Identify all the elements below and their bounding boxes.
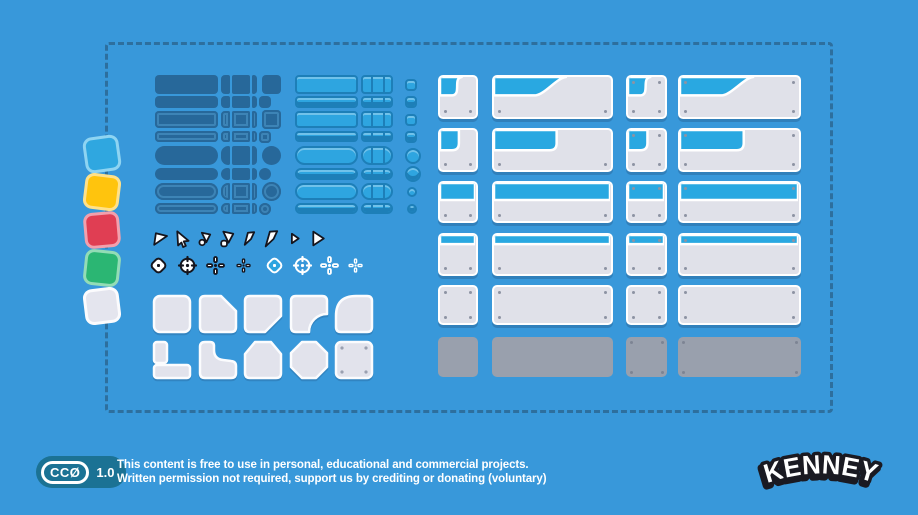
panel-header [680, 235, 798, 273]
screw-icon [658, 214, 661, 217]
light-button-segmented [361, 75, 393, 94]
keycap-arch-top [243, 340, 283, 385]
segment-divider [383, 205, 385, 212]
diamond-light-crosshair-icon [263, 254, 286, 277]
screw-icon [658, 291, 661, 294]
panel-plain-r5-c1 [438, 285, 478, 325]
light-button-circle [407, 187, 417, 197]
plus-light-crosshair-icon [318, 254, 341, 277]
screw-icon [498, 214, 501, 217]
screw-icon [604, 267, 607, 270]
dark-button-mid [232, 96, 250, 108]
panel-disabled-r6-c2 [492, 337, 613, 377]
screw-icon [444, 291, 447, 294]
screw-icon [469, 214, 472, 217]
screw-icon [444, 214, 447, 217]
segment-divider [383, 113, 385, 126]
screw-icon [498, 291, 501, 294]
diamond-dark-crosshair-icon [147, 254, 170, 277]
license-line-2: Written permission not required, support… [117, 473, 546, 487]
light-button-wide [295, 168, 358, 180]
screw-icon [684, 110, 687, 113]
panel-header-tab-r2-c1 [438, 128, 478, 172]
panel-header [494, 130, 610, 169]
screw-icon [658, 81, 661, 84]
dark-button-mid [232, 131, 250, 142]
segment-divider [371, 113, 373, 126]
screw-icon [658, 267, 661, 270]
panel-disabled-r6-c1 [438, 337, 478, 377]
swatch-red [82, 210, 121, 249]
swatch-yellow [82, 172, 122, 212]
screw-icon [658, 163, 661, 166]
screw-icon [795, 371, 798, 374]
screw-icon [469, 110, 472, 113]
logo-text: KENNEY [760, 449, 881, 488]
panel-header-half-r3-c3 [626, 181, 667, 223]
screw-icon [658, 239, 661, 242]
screw-icon [658, 316, 661, 319]
screw-icon [684, 187, 687, 190]
keycap-cut-bottom-right [243, 294, 283, 339]
dark-button-cap-right [252, 146, 257, 165]
dark-button-circle [262, 146, 281, 165]
screw-icon [444, 316, 447, 319]
screw-icon [684, 316, 687, 319]
screw-icon [661, 341, 664, 344]
light-button-square [405, 79, 417, 91]
dark-button-square [259, 96, 271, 108]
dark-button-cap-right [252, 96, 257, 108]
screw-icon [444, 267, 447, 270]
screw-icon [604, 110, 607, 113]
panel-header-tab-r2-c2 [492, 128, 613, 172]
keycap-cut-top-right [198, 294, 238, 339]
screw-icon [682, 341, 685, 344]
cc0-label: CCØ [41, 461, 89, 484]
dark-button-mid [232, 168, 250, 180]
screw-icon [632, 134, 635, 137]
dark-button-square [262, 75, 281, 94]
dark-button-mid [232, 146, 250, 165]
panel-header-tab-r2-c4 [678, 128, 801, 172]
screw-icon [658, 110, 661, 113]
keycap-l-curve [198, 340, 238, 385]
screw-icon [444, 110, 447, 113]
segment-divider [383, 98, 385, 106]
panel-header-diagonal-r1-c3 [626, 75, 667, 119]
segment-divider [383, 148, 385, 163]
segment-divider [383, 185, 385, 198]
dark-button-cap-right [252, 131, 257, 142]
screw-icon [469, 267, 472, 270]
keycap-l-shape [152, 340, 192, 385]
dark-button-cap-left [221, 168, 230, 180]
dark-button-square [262, 110, 281, 129]
screw-icon [684, 163, 687, 166]
light-button-circle [407, 204, 417, 214]
dark-button-cap-left [221, 75, 230, 94]
light-button-segmented [361, 168, 393, 180]
dark-button-circle [262, 182, 281, 201]
dark-button-wide [155, 96, 218, 108]
asset-pack-preview-sheet: CCØ 1.0 This content is free to use in p… [0, 0, 918, 515]
triangle-pointer-large-icon [307, 228, 328, 249]
swatch-white [82, 286, 122, 326]
keycap-notch-bottom-right [289, 294, 329, 339]
screw-icon [658, 134, 661, 137]
keycap-square [152, 294, 192, 339]
screw-icon [684, 291, 687, 294]
dark-button-cap-left [221, 203, 230, 214]
screw-icon [632, 239, 635, 242]
panel-header-thin-r4-c2 [492, 233, 613, 276]
screw-icon [632, 214, 635, 217]
screw-icon [792, 134, 795, 137]
flag-pointer-icon [150, 228, 171, 249]
dark-button-circle [259, 203, 271, 215]
plus-dark-crosshair-icon [204, 254, 227, 277]
screw-icon [792, 267, 795, 270]
segment-divider [371, 133, 373, 140]
screw-icon [604, 316, 607, 319]
dark-button-cap-left [221, 96, 230, 108]
screw-icon [684, 214, 687, 217]
screw-icon [684, 267, 687, 270]
segment-divider [371, 98, 373, 106]
drag-pointer-small-icon [195, 228, 216, 249]
light-button-segmented [361, 183, 393, 200]
light-button-wide [295, 183, 358, 200]
screw-icon [630, 341, 633, 344]
screw-icon [792, 81, 795, 84]
screw-icon [632, 291, 635, 294]
screw-icon [792, 239, 795, 242]
panel-header [494, 235, 610, 273]
keycap-screw-plate [334, 340, 374, 385]
plus-small-dark-crosshair-icon [232, 254, 255, 277]
plus-small-light-crosshair-icon [344, 254, 367, 277]
light-button-wide [295, 96, 358, 108]
cc0-badge: CCØ 1.0 [36, 456, 126, 488]
segment-divider [371, 77, 373, 92]
screw-icon [498, 110, 501, 113]
light-button-wide [295, 203, 358, 214]
swatch-blue [82, 134, 123, 175]
panel-disabled-r6-c3 [626, 337, 667, 377]
dark-button-wide [155, 131, 218, 142]
light-button-circle [405, 166, 421, 182]
screw-icon [792, 163, 795, 166]
dark-button-cap-right [252, 111, 257, 128]
panel-header [494, 77, 610, 116]
dark-button-wide [155, 146, 218, 165]
dark-button-wide [155, 203, 218, 214]
segment-divider [371, 205, 373, 212]
panel-plain-r5-c2 [492, 285, 613, 325]
panel-header [680, 183, 798, 220]
light-button-segmented [361, 131, 393, 142]
light-button-segmented [361, 96, 393, 108]
keycap-octagon [289, 340, 329, 385]
shard-pointer-small-icon [240, 228, 261, 249]
dark-button-cap-left [221, 131, 230, 142]
screw-icon [632, 267, 635, 270]
panel-header-diagonal-r1-c2 [492, 75, 613, 119]
target-light-crosshair-icon [291, 254, 314, 277]
segment-divider [371, 170, 373, 178]
dark-button-wide [155, 168, 218, 180]
screw-icon [604, 214, 607, 217]
panel-plain-r5-c4 [678, 285, 801, 325]
light-button-wide [295, 131, 358, 142]
panel-plain-r5-c3 [626, 285, 667, 325]
panel-header-half-r3-c1 [438, 181, 478, 223]
dark-button-square [259, 131, 271, 143]
screw-icon [444, 163, 447, 166]
dark-button-mid [232, 111, 250, 128]
screw-icon [792, 214, 795, 217]
screw-icon [604, 291, 607, 294]
screw-icon [632, 163, 635, 166]
dark-button-circle [259, 168, 271, 180]
shard-pointer-large-icon [262, 228, 283, 249]
panel-header-half-r3-c2 [492, 181, 613, 223]
cc0-version: 1.0 [96, 465, 114, 480]
panel-header-tab-r2-c3 [626, 128, 667, 172]
dark-button-mid [232, 183, 250, 200]
segment-divider [371, 148, 373, 163]
dark-button-cap-right [252, 75, 257, 94]
screw-icon [498, 163, 501, 166]
panel-header [680, 130, 798, 169]
dark-button-wide [155, 75, 218, 94]
screw-icon [658, 187, 661, 190]
screw-icon [498, 316, 501, 319]
swatch-green [82, 248, 122, 288]
dark-button-cap-left [221, 183, 230, 200]
triangle-pointer-small-icon [284, 228, 305, 249]
light-button-square [405, 96, 417, 108]
light-button-square [405, 114, 417, 126]
segment-divider [371, 185, 373, 198]
panel-header-thin-r4-c3 [626, 233, 667, 276]
light-button-square [405, 131, 417, 143]
segment-divider [383, 77, 385, 92]
light-button-wide [295, 75, 358, 94]
light-button-wide [295, 111, 358, 128]
segment-divider [383, 170, 385, 178]
license-text: This content is free to use in personal,… [117, 459, 546, 486]
panel-header [680, 77, 798, 116]
panel-header-diagonal-r1-c1 [438, 75, 478, 119]
light-button-segmented [361, 111, 393, 128]
screw-icon [469, 316, 472, 319]
panel-header-half-r3-c4 [678, 181, 801, 223]
dark-button-cap-left [221, 111, 230, 128]
screw-icon [795, 341, 798, 344]
dark-button-mid [232, 75, 250, 94]
screw-icon [684, 134, 687, 137]
panel-header-thin-r4-c1 [438, 233, 478, 276]
screw-icon [630, 371, 633, 374]
dark-button-wide [155, 111, 218, 128]
dark-button-cap-right [252, 183, 257, 200]
segment-divider [383, 133, 385, 140]
screw-icon [632, 187, 635, 190]
keycap-round-top-left [334, 294, 374, 339]
kenney-logo: KENNEY KENNEY [762, 436, 886, 500]
screw-icon [604, 163, 607, 166]
screw-icon [684, 81, 687, 84]
screw-icon [632, 81, 635, 84]
screw-icon [469, 163, 472, 166]
light-button-segmented [361, 146, 393, 165]
arrow-cursor-icon [172, 228, 193, 249]
panel-disabled-r6-c4 [678, 337, 801, 377]
dark-button-cap-left [221, 146, 230, 165]
screw-icon [792, 316, 795, 319]
screw-icon [792, 187, 795, 190]
screw-icon [469, 291, 472, 294]
screw-icon [682, 371, 685, 374]
light-button-segmented [361, 203, 393, 214]
panel-header-thin-r4-c4 [678, 233, 801, 276]
dark-button-cap-right [252, 203, 257, 214]
light-button-wide [295, 146, 358, 165]
screw-icon [632, 316, 635, 319]
light-button-circle [405, 148, 421, 164]
dark-button-cap-right [252, 168, 257, 180]
screw-icon [792, 110, 795, 113]
dark-button-wide [155, 183, 218, 200]
target-dark-crosshair-icon [176, 254, 199, 277]
svg-text:KENNEY: KENNEY [760, 449, 881, 488]
license-line-1: This content is free to use in personal,… [117, 459, 546, 473]
screw-icon [661, 371, 664, 374]
panel-header-diagonal-r1-c4 [678, 75, 801, 119]
screw-icon [632, 110, 635, 113]
screw-icon [684, 239, 687, 242]
screw-icon [792, 291, 795, 294]
drag-pointer-large-icon [217, 228, 238, 249]
panel-header [494, 183, 610, 220]
screw-icon [498, 267, 501, 270]
dark-button-mid [232, 203, 250, 214]
